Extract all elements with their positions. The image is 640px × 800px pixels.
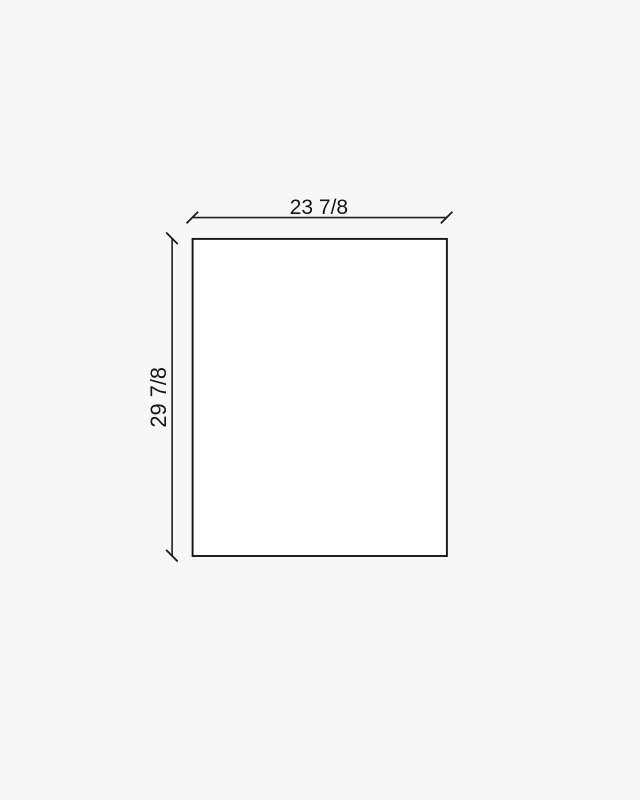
svg-text:23 7/8: 23 7/8: [290, 196, 348, 219]
svg-text:29 7/8: 29 7/8: [146, 367, 171, 428]
